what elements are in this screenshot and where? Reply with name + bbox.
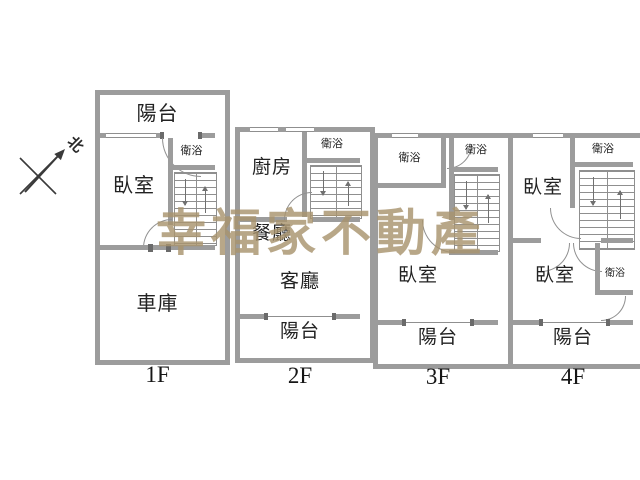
north-label: 北: [64, 133, 87, 156]
room-label-bedroom: 臥室: [513, 266, 597, 287]
room-label-bath: 衛浴: [304, 138, 360, 150]
room-label-balcony: 陽台: [378, 328, 498, 349]
window-mark: [404, 322, 472, 323]
door-jamb: [332, 313, 336, 320]
room-label-kitchen: 廚房: [240, 158, 304, 179]
room-label-living: 客廳: [240, 272, 360, 293]
room-label-bedroom: 臥室: [513, 178, 573, 199]
door-jamb: [264, 313, 268, 320]
wall: [449, 167, 498, 172]
window-mark: [392, 133, 418, 138]
stair-arrow-icon: [593, 177, 594, 205]
wall: [572, 162, 633, 167]
floor-label-4f: 4F: [508, 364, 638, 390]
room-label-bath: 衛浴: [168, 145, 215, 157]
door-jamb: [606, 319, 610, 326]
stair-arrow-icon: [488, 195, 489, 223]
window-mark: [533, 133, 563, 138]
wall: [513, 238, 541, 243]
door-arc: [550, 208, 581, 239]
watermark-text: 幸福家不動產: [156, 208, 486, 258]
room-label-bath: 衛浴: [454, 144, 498, 156]
window-mark: [106, 133, 156, 138]
door-jamb: [402, 319, 406, 326]
window-mark: [286, 127, 314, 132]
room-label-garage: 車庫: [100, 293, 215, 315]
door-arc: [601, 296, 626, 321]
window-mark: [250, 127, 278, 132]
floor-label-2f: 2F: [235, 363, 365, 389]
wall: [304, 158, 360, 163]
wall: [200, 133, 215, 138]
floor-plan-sheet: 幸福家不動產 北 陽台 衛浴 臥室 車庫 1F 廚房: [0, 0, 640, 480]
wall: [601, 238, 633, 243]
wall: [378, 320, 404, 325]
wall: [168, 165, 215, 170]
door-jamb: [539, 319, 543, 326]
wall: [441, 138, 446, 188]
room-label-balcony: 陽台: [240, 322, 360, 343]
wall: [598, 290, 633, 295]
wall: [378, 183, 446, 188]
stair-arrow-icon: [348, 182, 349, 206]
stair-arrow-icon: [323, 171, 324, 195]
north-compass-icon: 北: [15, 126, 93, 208]
room-label-bedroom: 臥室: [378, 266, 458, 287]
room-label-balcony: 陽台: [100, 103, 215, 125]
wall: [240, 314, 266, 319]
window-mark: [541, 322, 608, 323]
stair-arrow-icon: [185, 179, 186, 205]
window-mark: [266, 316, 334, 317]
room-label-bath: 衛浴: [573, 143, 633, 155]
door-jamb: [470, 319, 474, 326]
door-jamb: [148, 244, 153, 252]
room-label-bedroom: 臥室: [100, 175, 168, 197]
stair-arrow-icon: [620, 191, 621, 219]
floor-label-1f: 1F: [95, 362, 220, 388]
room-label-balcony: 陽台: [513, 328, 633, 349]
wall: [513, 320, 541, 325]
floor-plan-4f: 臥室 衛浴 臥室 衛浴 陽台: [508, 133, 640, 369]
floor-label-3f: 3F: [373, 364, 503, 390]
room-label-bath: 衛浴: [597, 268, 633, 279]
wall: [472, 320, 498, 325]
wall: [608, 320, 633, 325]
wall: [334, 314, 360, 319]
room-label-bath: 衛浴: [378, 152, 441, 164]
north-arrow-shaft: [25, 156, 58, 192]
